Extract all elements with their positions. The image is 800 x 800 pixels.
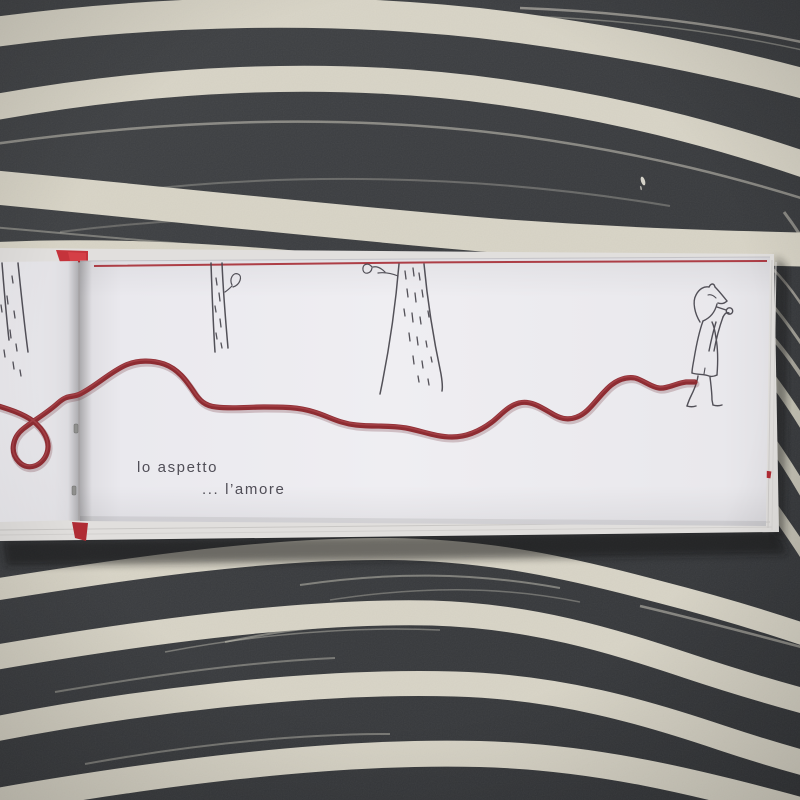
photo-vignette <box>0 0 800 800</box>
photo-of-open-book: lo aspetto ... l’amore <box>0 0 800 800</box>
book-photo-scene <box>0 0 800 800</box>
page-caption-line1: lo aspetto <box>137 459 218 476</box>
page-caption-line2: ... l’amore <box>202 481 285 498</box>
